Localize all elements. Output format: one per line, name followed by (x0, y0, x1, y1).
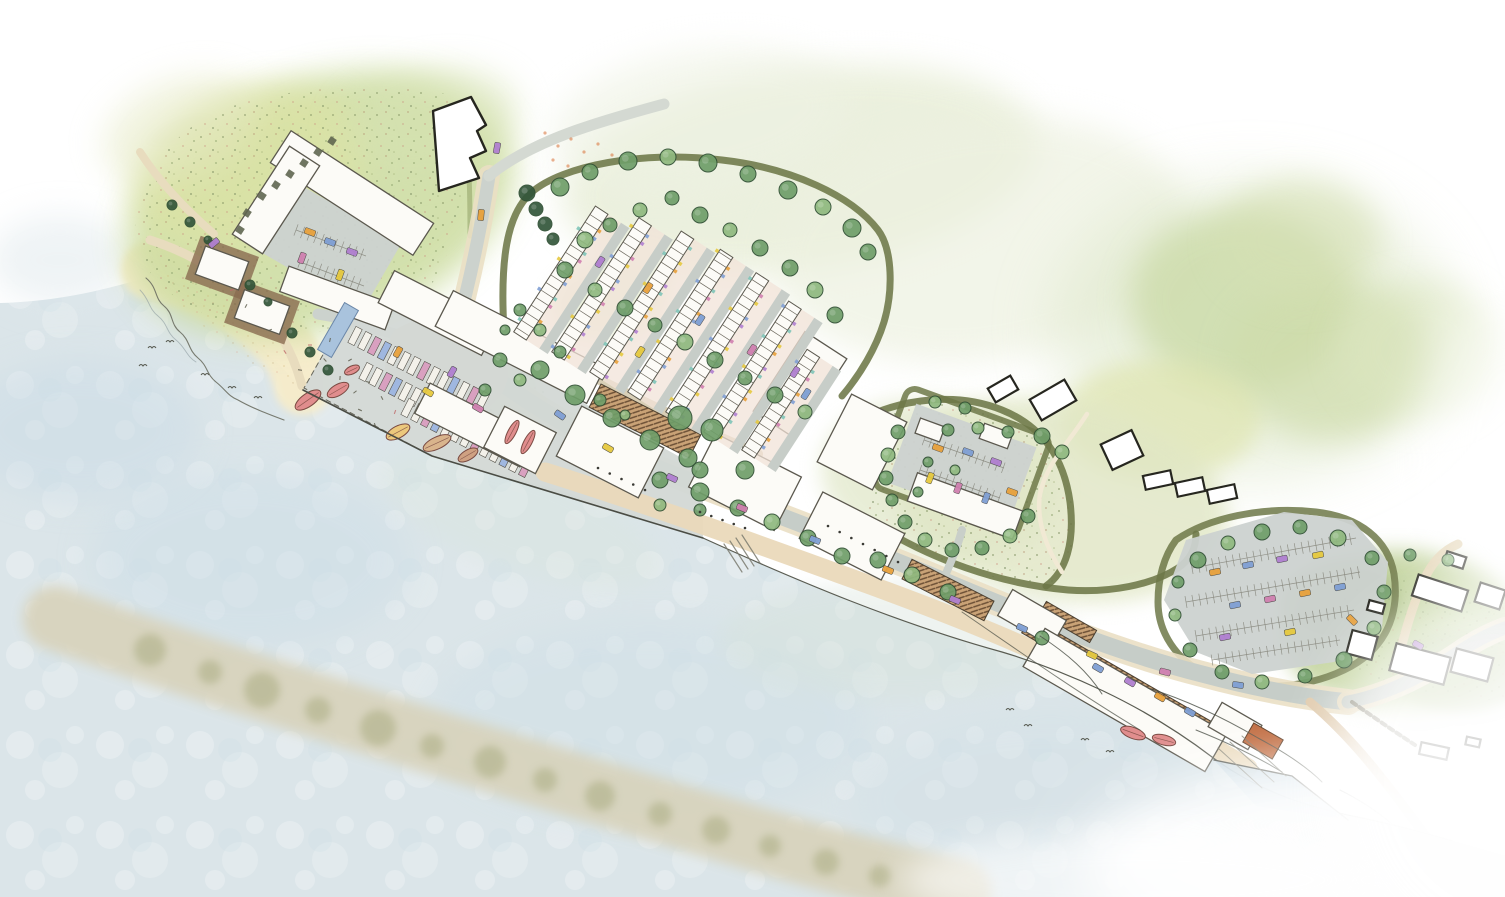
existing-building-north (433, 97, 486, 191)
masterplan-canvas (0, 0, 1505, 897)
site-plan-illustration (0, 0, 1505, 897)
